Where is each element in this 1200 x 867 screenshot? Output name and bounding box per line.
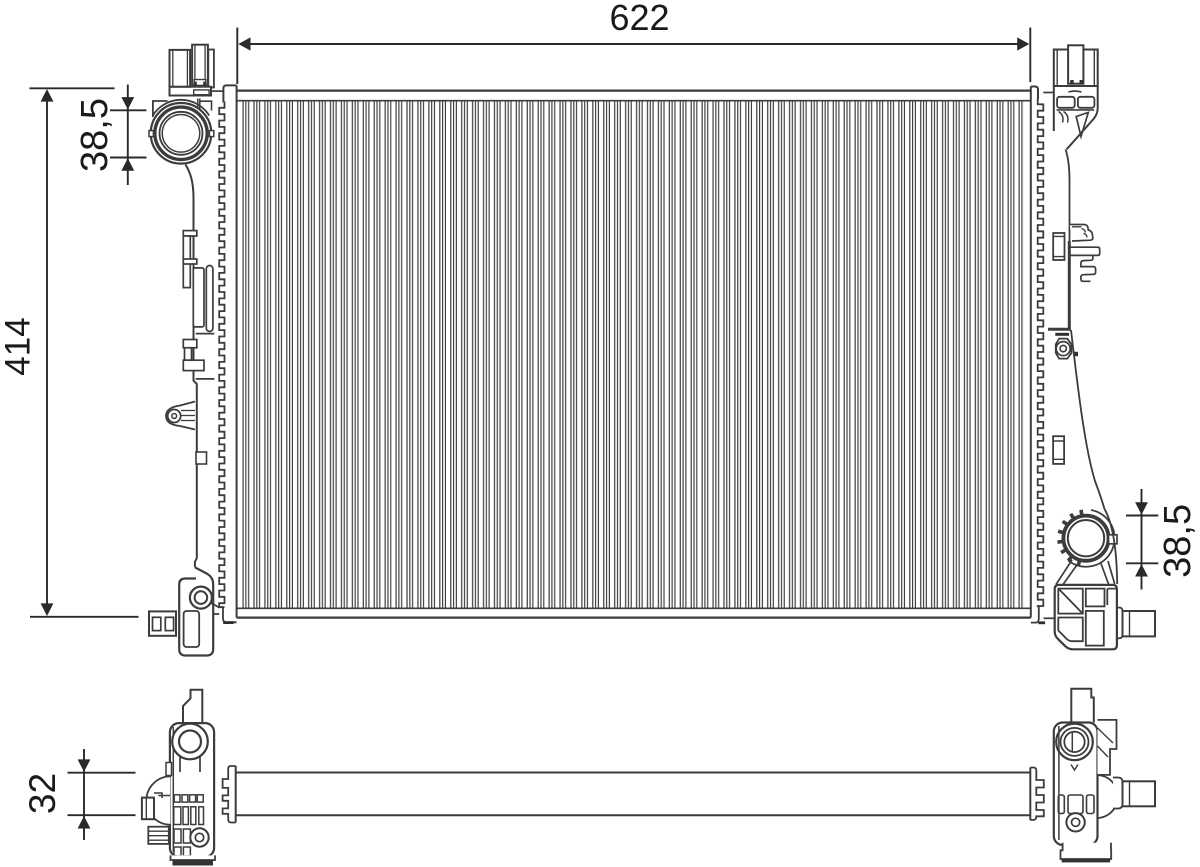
svg-text:622: 622 (609, 0, 669, 38)
svg-text:38,5: 38,5 (1157, 504, 1199, 578)
svg-text:38,5: 38,5 (74, 98, 116, 172)
svg-text:414: 414 (0, 317, 38, 375)
svg-text:32: 32 (22, 773, 63, 814)
